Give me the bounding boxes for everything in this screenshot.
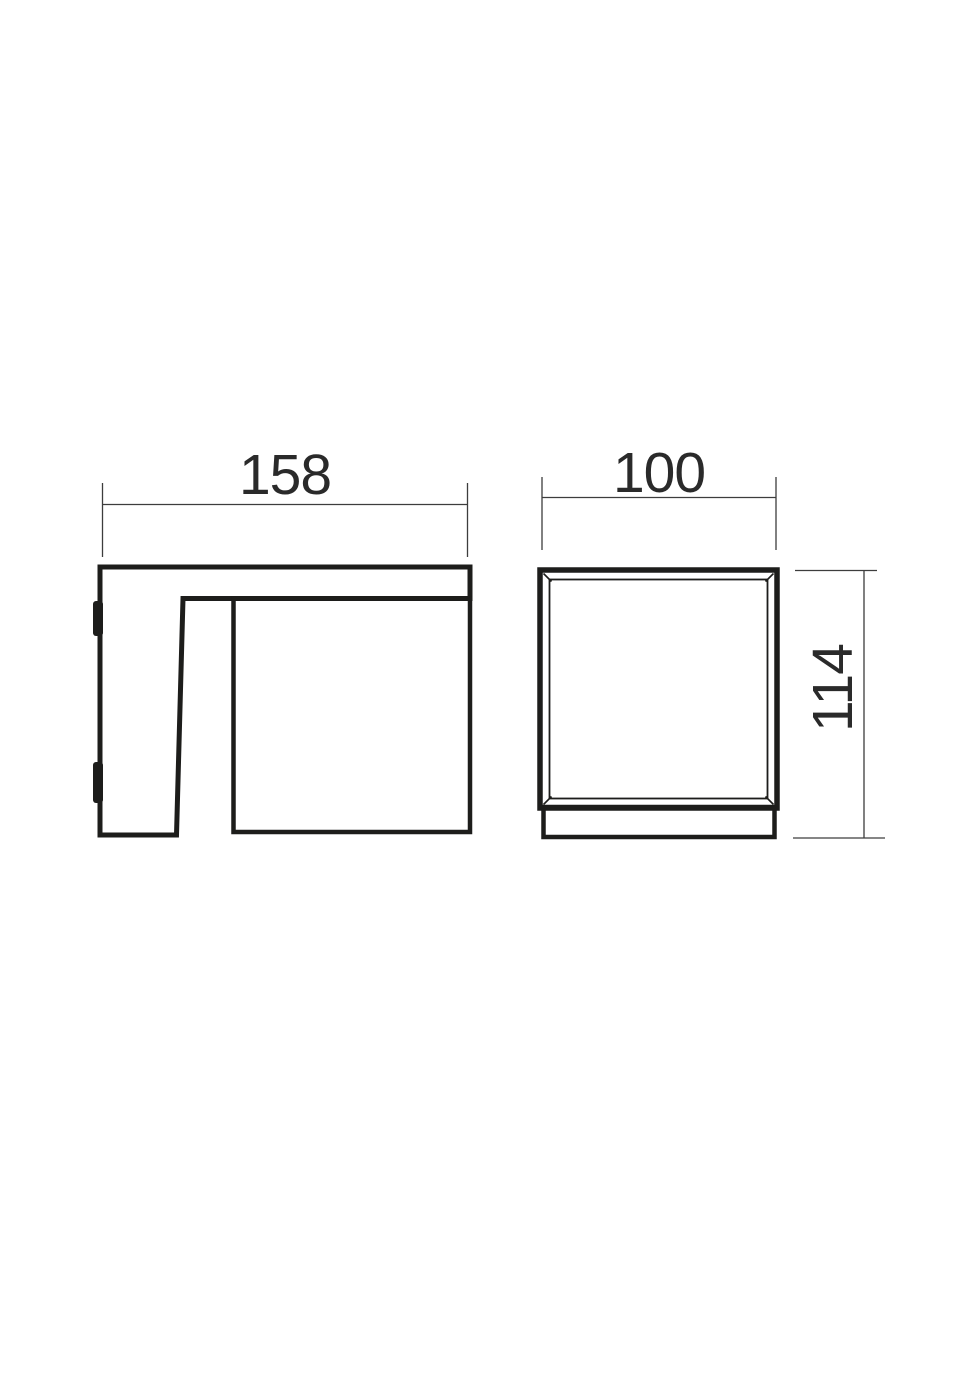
side-view-body-outline <box>234 599 471 833</box>
front-view-face-outline <box>540 570 777 808</box>
front-width-value: 100 <box>613 441 705 505</box>
corner-chamfer-top-left <box>544 574 552 582</box>
side-view-mount-detail-upper <box>93 601 103 636</box>
technical-drawing: 158 100 114 <box>0 0 980 1400</box>
corner-chamfer-bottom-left <box>544 797 552 805</box>
front-height-value: 114 <box>801 644 865 732</box>
side-view-mount-detail-lower <box>93 762 103 803</box>
spec-sheet-page: 158 100 114 <box>0 0 980 1400</box>
front-view-base-plate <box>544 807 775 837</box>
side-width-value: 158 <box>239 443 331 507</box>
side-view <box>93 567 470 835</box>
side-view-bracket-outline <box>100 567 470 835</box>
corner-chamfer-bottom-right <box>766 797 774 805</box>
front-view <box>540 570 777 837</box>
front-view-face-inner-line <box>550 580 768 799</box>
corner-chamfer-top-right <box>766 574 774 582</box>
side-width-dimension: 158 <box>103 443 468 557</box>
front-height-dimension: 114 <box>793 571 885 839</box>
front-width-dimension: 100 <box>542 441 776 550</box>
